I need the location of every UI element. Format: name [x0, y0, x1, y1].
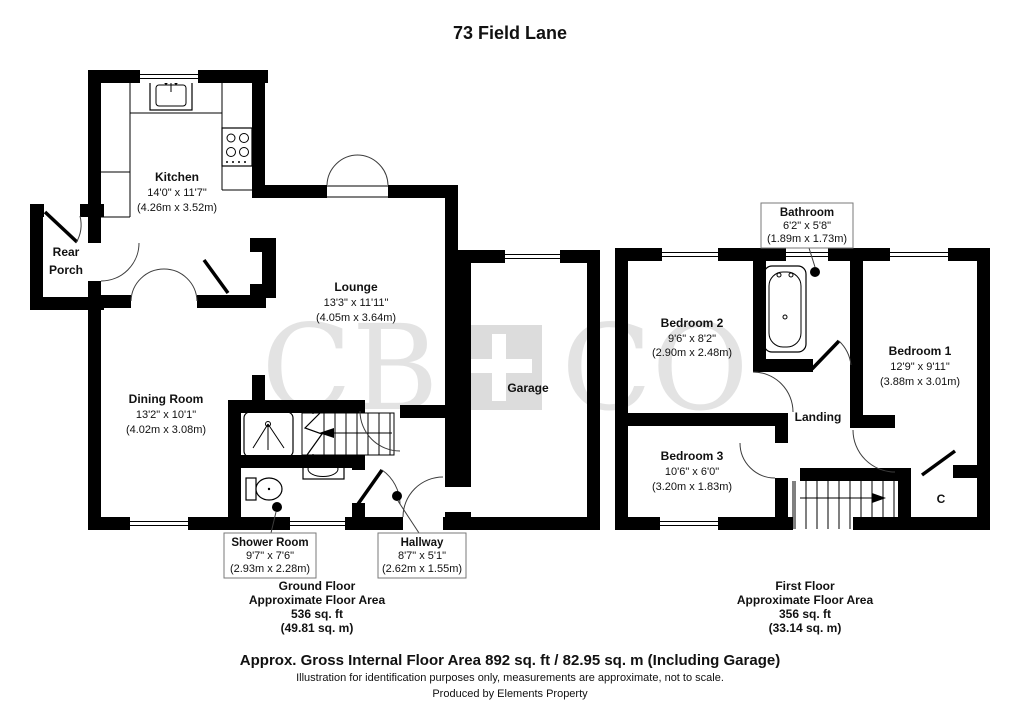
footer-gross-area: Approx. Gross Internal Floor Area 892 sq…: [240, 652, 780, 669]
bathroom-window: [786, 248, 828, 261]
garage-label: Garage: [507, 381, 549, 395]
wall-segment: [718, 248, 786, 261]
footer-produced-by: Produced by Elements Property: [432, 688, 588, 700]
hallway-label: Hallway: [401, 537, 444, 549]
wall-segment: [445, 197, 458, 487]
hallway-imperial: 8'7" x 5'1": [398, 550, 446, 562]
french-door-opening: [327, 185, 388, 198]
hob-knob-icon: [244, 161, 246, 163]
gf-toilet-detail: [268, 488, 270, 490]
bedroom1-metric: (3.88m x 3.01m): [880, 376, 960, 388]
bedroom2-imperial: 9'6" x 8'2": [668, 333, 716, 345]
page-title: 73 Field Lane: [453, 23, 567, 43]
ff-summary-area-m: (33.14 sq. m): [769, 621, 842, 635]
bedroom3-imperial: 10'6" x 6'0": [665, 466, 719, 478]
bedroom2-metric: (2.90m x 2.48m): [652, 347, 732, 359]
bedroom1-imperial: 12'9" x 9'11": [890, 361, 950, 373]
wall-segment: [252, 185, 327, 198]
wall-segment: [953, 465, 977, 478]
gf-summary-area-ft: 536 sq. ft: [291, 607, 343, 621]
lounge-imperial: 13'3" x 11'11": [324, 297, 389, 309]
wall-segment: [753, 261, 766, 366]
shower-room-marker-dot: [272, 502, 282, 512]
shower-room-window: [290, 517, 345, 530]
wall-segment: [352, 455, 365, 470]
cupboard-label: C: [937, 492, 946, 506]
wall-segment: [80, 204, 104, 217]
kitchen-window: [140, 70, 198, 83]
wall-segment: [388, 185, 458, 198]
garage-window: [505, 250, 560, 263]
bedroom2-window: [662, 248, 718, 261]
wall-segment: [753, 359, 813, 372]
kitchen-imperial: 14'0" x 11'7": [147, 187, 207, 199]
wall-segment: [445, 512, 458, 530]
rear-porch-label-line2: Porch: [49, 263, 83, 277]
gf-toilet-cistern: [246, 478, 256, 500]
wall-segment: [228, 455, 365, 468]
bedroom3-label: Bedroom 3: [661, 449, 724, 463]
lounge-metric: (4.05m x 3.64m): [316, 312, 396, 324]
kitchen-metric: (4.26m x 3.52m): [137, 202, 217, 214]
watermark-plus-vbar: [492, 334, 506, 401]
shower-room-imperial: 9'7" x 7'6": [246, 550, 294, 562]
ff-summary-label: Approximate Floor Area: [737, 593, 874, 607]
wall-segment: [615, 248, 628, 530]
bathroom-marker-dot: [810, 267, 820, 277]
wall-segment: [628, 413, 778, 426]
lounge-label: Lounge: [334, 280, 378, 294]
wall-segment: [88, 517, 130, 530]
wall-segment: [718, 517, 793, 530]
wall-segment: [30, 204, 43, 310]
hob-knob-icon: [238, 161, 240, 163]
wall-segment: [88, 217, 101, 243]
garage-wall-segment: [458, 517, 600, 530]
landing-label: Landing: [795, 410, 842, 424]
wall-segment: [828, 248, 890, 261]
shower-room-metric: (2.93m x 2.28m): [230, 563, 310, 575]
wall-segment: [775, 478, 788, 517]
wall-segment: [252, 70, 265, 198]
bathroom-label: Bathroom: [780, 207, 834, 219]
wall-segment: [228, 400, 365, 413]
bedroom3-metric: (3.20m x 1.83m): [652, 481, 732, 493]
ff-summary-area-ft: 356 sq. ft: [779, 607, 831, 621]
wall-segment: [101, 295, 131, 308]
wall-segment: [88, 70, 101, 217]
bathroom-metric: (1.89m x 1.73m): [767, 233, 847, 245]
bedroom1-label: Bedroom 1: [889, 344, 952, 358]
bedroom2-label: Bedroom 2: [661, 316, 724, 330]
wall-segment: [228, 400, 241, 530]
hallway-marker-dot: [392, 491, 402, 501]
hob-knob-icon: [226, 161, 228, 163]
hallway-metric: (2.62m x 1.55m): [382, 563, 462, 575]
floorplan-svg: CB CO: [0, 0, 1020, 720]
hob-knob-icon: [232, 161, 234, 163]
bedroom1-window: [890, 248, 948, 261]
wall-segment: [853, 517, 990, 530]
wall-segment: [850, 261, 863, 428]
bedroom3-window: [660, 517, 718, 530]
wall-segment: [977, 248, 990, 530]
ff-summary-floor: First Floor: [775, 579, 835, 593]
wall-segment: [352, 503, 365, 530]
rear-porch-label-line1: Rear: [53, 245, 80, 259]
wall-segment: [775, 413, 788, 443]
floorplan-page: CB CO: [0, 0, 1020, 720]
wall-segment: [400, 405, 458, 418]
garage-wall-segment: [587, 250, 600, 530]
gf-summary-floor: Ground Floor: [279, 579, 356, 593]
dining-room-metric: (4.02m x 3.08m): [126, 424, 206, 436]
shower-room-label: Shower Room: [231, 537, 308, 549]
dining-room-imperial: 13'2" x 10'1": [136, 409, 196, 421]
bathroom-imperial: 6'2" x 5'8": [783, 220, 831, 232]
wall-segment: [850, 415, 895, 428]
kitchen-hob: [222, 128, 252, 166]
garage-wall-segment: [458, 250, 471, 487]
chimney-recess: [250, 252, 262, 284]
gf-summary-area-m: (49.81 sq. m): [281, 621, 354, 635]
gf-summary-label: Approximate Floor Area: [249, 593, 386, 607]
dining-window: [130, 517, 188, 530]
kitchen-label: Kitchen: [155, 170, 199, 184]
footer-disclaimer: Illustration for identification purposes…: [296, 672, 724, 684]
wall-segment: [898, 468, 911, 530]
dining-room-label: Dining Room: [129, 392, 204, 406]
garage-wall-segment: [458, 250, 505, 263]
wall-segment: [88, 281, 101, 530]
